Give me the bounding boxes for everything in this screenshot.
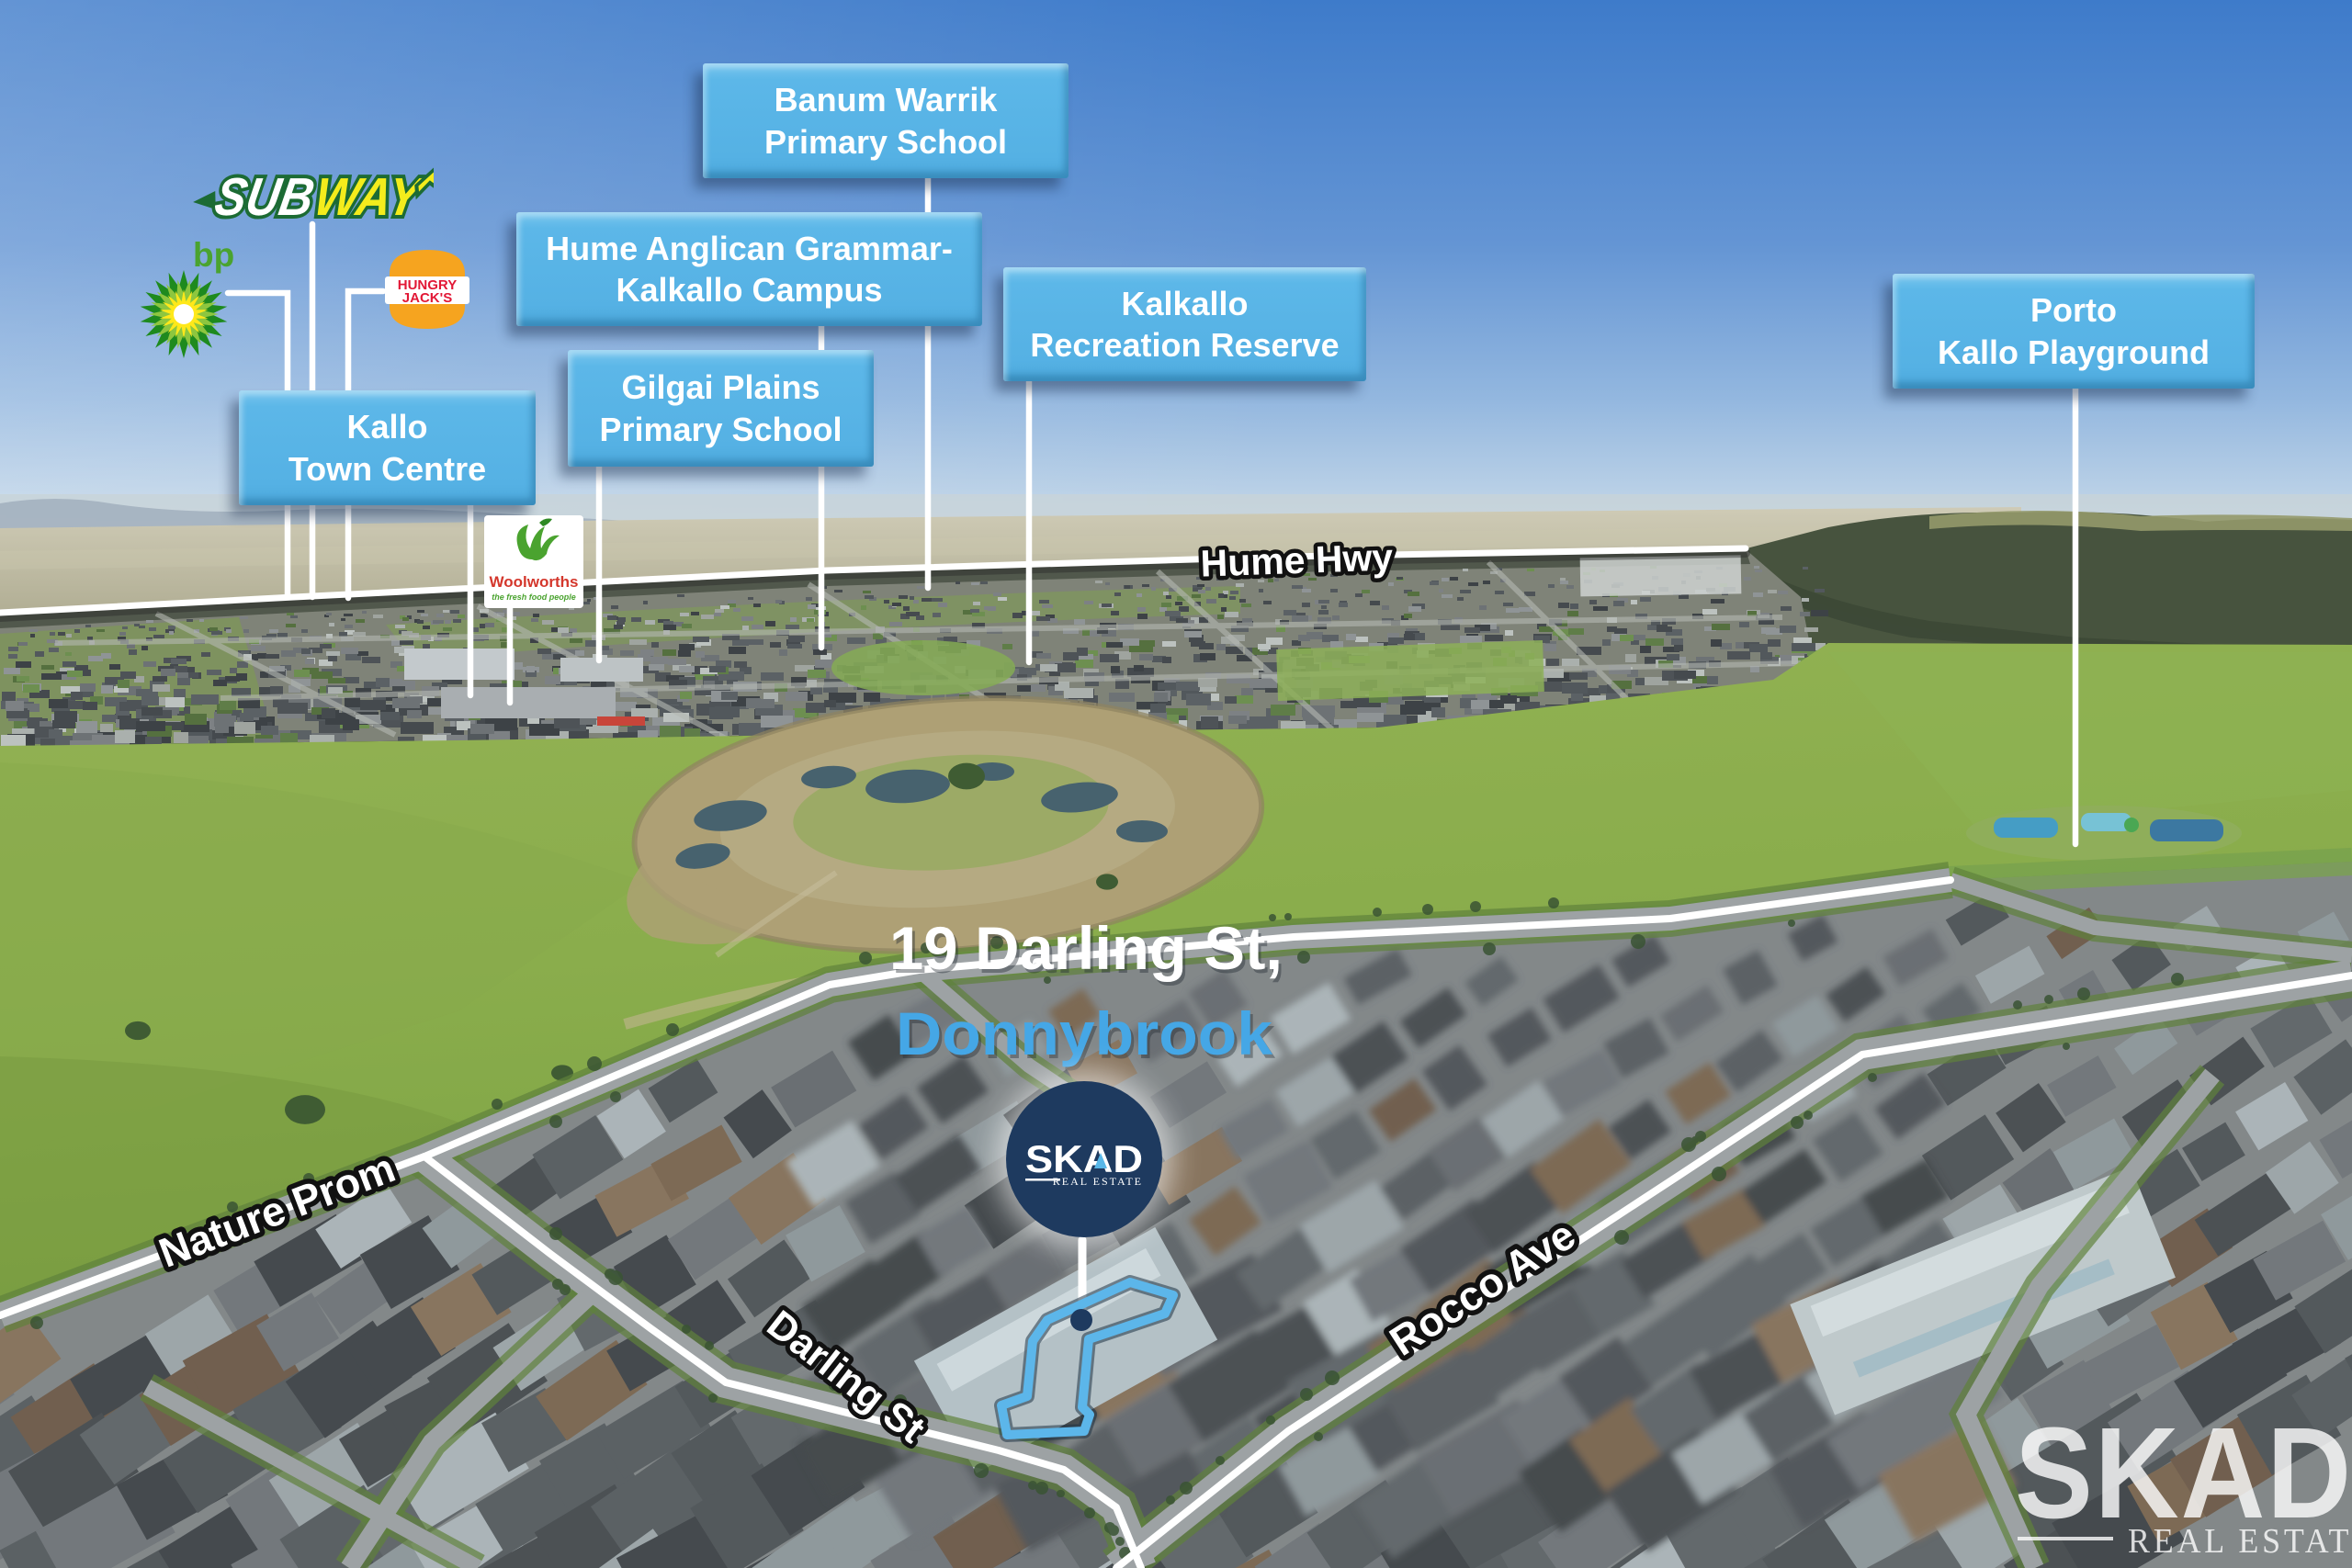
- svg-text:bp: bp: [193, 236, 234, 274]
- svg-text:REAL ESTATE: REAL ESTATE: [2128, 1522, 2352, 1561]
- svg-text:Donnybrook: Donnybrook: [896, 999, 1272, 1067]
- svg-text:the fresh food people: the fresh food people: [492, 592, 576, 602]
- svg-text:SKAD: SKAD: [1025, 1137, 1143, 1180]
- svg-text:JACK'S: JACK'S: [402, 290, 452, 306]
- svg-text:19 Darling St,: 19 Darling St,: [889, 914, 1283, 982]
- svg-text:SUB: SUB: [210, 167, 318, 227]
- svg-text:REAL ESTATE: REAL ESTATE: [1053, 1175, 1143, 1188]
- svg-text:WAY: WAY: [310, 167, 429, 227]
- svg-text:Woolworths: Woolworths: [490, 573, 579, 591]
- svg-text:Hume Hwy: Hume Hwy: [1200, 536, 1394, 584]
